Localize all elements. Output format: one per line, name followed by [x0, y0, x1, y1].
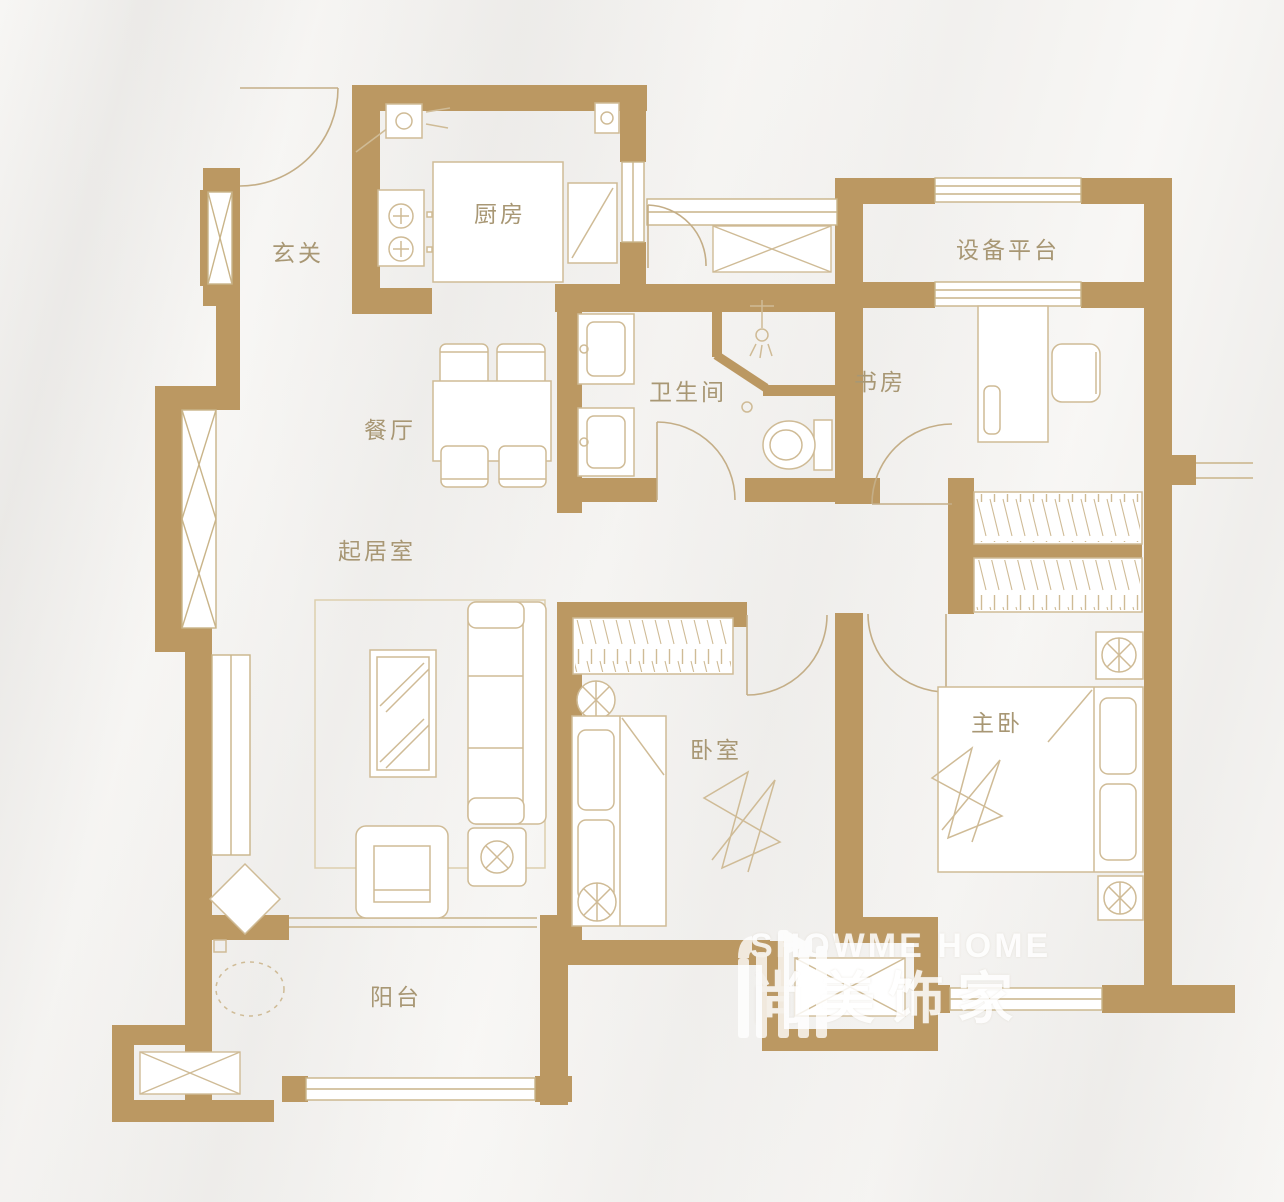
- stove-icon: [378, 190, 432, 266]
- balcony-sliding-opening: [289, 918, 537, 927]
- refrigerator-icon: [568, 183, 617, 263]
- floor-drain-icon: [742, 402, 752, 412]
- dining-chair: [499, 446, 546, 487]
- dining-chair: [441, 446, 488, 487]
- room-label-bathroom: 卫生间: [649, 373, 727, 407]
- desk-chair: [1052, 344, 1100, 402]
- room-label-master-bedroom: 主卧: [971, 704, 1023, 738]
- master-bedroom-door-arc: [868, 614, 946, 692]
- bedroom-door-arc: [747, 615, 827, 695]
- wardrobe: [573, 618, 733, 674]
- window-platform-north: [935, 178, 1081, 202]
- decor-circle: [577, 681, 615, 719]
- study-door-arc: [872, 424, 952, 504]
- wardrobe: [974, 492, 1142, 544]
- quilt-decor: [704, 772, 780, 872]
- entry-door-arc: [240, 88, 338, 186]
- plant-dashed: [216, 962, 284, 1016]
- ac-platform-box-left: [140, 1052, 240, 1094]
- nightstand: [1096, 632, 1143, 679]
- window-west-wall: [182, 410, 216, 628]
- watermark-logo-icon: [736, 922, 848, 1040]
- window-balcony-south: [306, 1078, 535, 1100]
- dining-furniture: [433, 344, 551, 487]
- watermark: SHOWME HOME 尚美饰家: [736, 922, 1051, 1032]
- floor-plan: 玄关 厨房 设备平台 卫生间 书房 餐厅 起居室 卧室 主卧 阳台 SHOWME…: [0, 0, 1284, 1202]
- bathroom-door-arc: [657, 422, 735, 500]
- nightstand: [1098, 876, 1143, 920]
- balcony-decor: [214, 940, 284, 1016]
- side-table-plant: [468, 828, 526, 886]
- room-label-kitchen: 厨房: [474, 195, 526, 229]
- decor-circle: [578, 883, 616, 921]
- small-fixture: [214, 940, 226, 952]
- keyboard: [984, 386, 1000, 434]
- living-furniture: [210, 600, 546, 934]
- dining-chair: [440, 344, 488, 386]
- room-label-balcony: 阳台: [370, 978, 422, 1012]
- bed: [938, 687, 1143, 872]
- window-entry-wall: [208, 192, 232, 284]
- wardrobe: [974, 558, 1142, 612]
- shower-enclosure: [712, 300, 835, 396]
- window-kitchen-east: [622, 162, 644, 242]
- sink-icon-top: [578, 314, 634, 384]
- kitchen-fixtures: [356, 103, 619, 282]
- party-wall-lines: [1196, 463, 1253, 478]
- dining-chair: [497, 344, 545, 386]
- bedroom-furniture: [572, 618, 780, 926]
- armchair: [356, 826, 448, 918]
- window-platform-south: [935, 282, 1081, 306]
- room-label-dining: 餐厅: [364, 411, 416, 445]
- room-label-study: 书房: [854, 363, 906, 397]
- room-label-equipment-platform: 设备平台: [956, 231, 1060, 265]
- study-furniture: [978, 306, 1100, 442]
- room-label-living: 起居室: [338, 532, 416, 566]
- toilet-icon: [763, 420, 832, 470]
- floor-plan-drawing: [0, 0, 1284, 1202]
- kitchen-vent-icon: [595, 103, 619, 133]
- kitchen-sink-icon: [386, 104, 450, 138]
- sink-icon-bottom: [578, 408, 634, 476]
- laundry-platform-box: [713, 226, 831, 272]
- room-label-bedroom: 卧室: [690, 731, 742, 765]
- window-living-west: [212, 655, 250, 855]
- sofa: [468, 602, 546, 824]
- room-label-entry: 玄关: [272, 234, 324, 268]
- tv-cabinet: [370, 650, 436, 777]
